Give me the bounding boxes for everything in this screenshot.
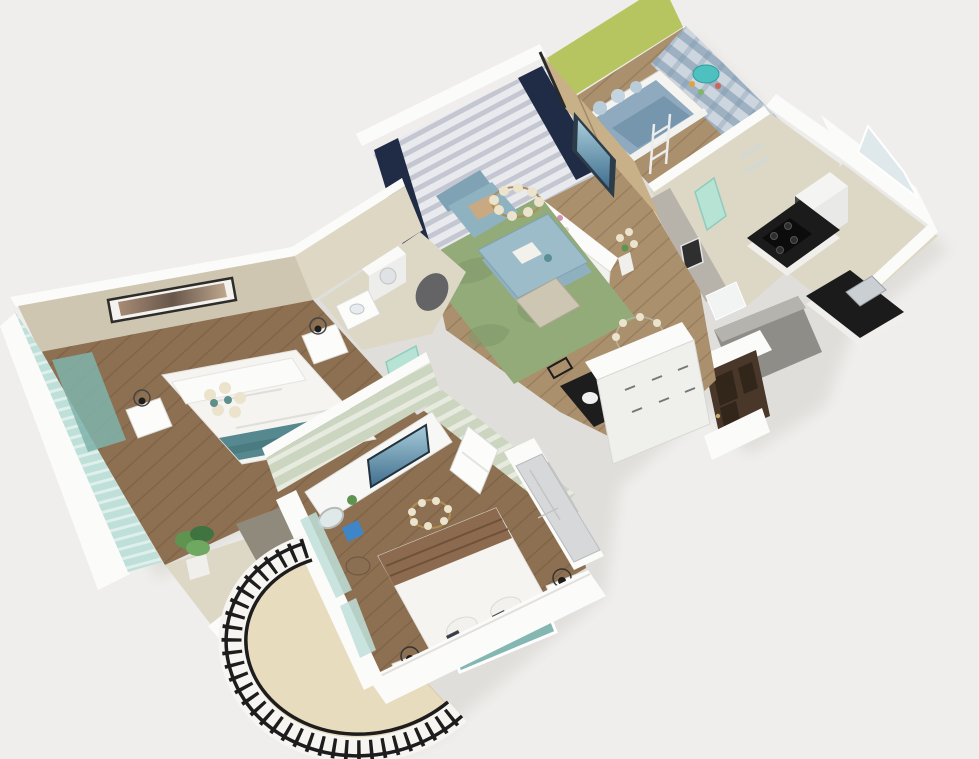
kids-chair xyxy=(698,89,704,95)
lamp-shade xyxy=(139,398,146,405)
leaf xyxy=(622,245,629,252)
burner xyxy=(791,237,798,244)
blossom xyxy=(625,228,633,236)
burner xyxy=(785,223,792,230)
bunk-pillow xyxy=(630,81,642,93)
screenshot-root xyxy=(0,0,979,759)
lamp-shade xyxy=(315,326,322,333)
kids-chair xyxy=(689,81,695,87)
basin xyxy=(350,304,364,314)
floor-plan-3d-render xyxy=(0,0,979,759)
burner xyxy=(777,247,784,254)
washer-door xyxy=(380,268,396,284)
burner xyxy=(771,233,778,240)
door-knob xyxy=(716,414,720,418)
desk-plant xyxy=(347,495,357,505)
blossom xyxy=(630,240,638,248)
table-decor xyxy=(544,254,552,262)
teal-play-table xyxy=(693,65,719,83)
plate xyxy=(582,392,598,404)
wood-stool xyxy=(346,557,370,575)
bunk-pillow xyxy=(593,101,607,115)
kids-chair xyxy=(715,83,721,89)
blossom xyxy=(616,234,624,242)
bunk-pillow xyxy=(611,89,625,103)
